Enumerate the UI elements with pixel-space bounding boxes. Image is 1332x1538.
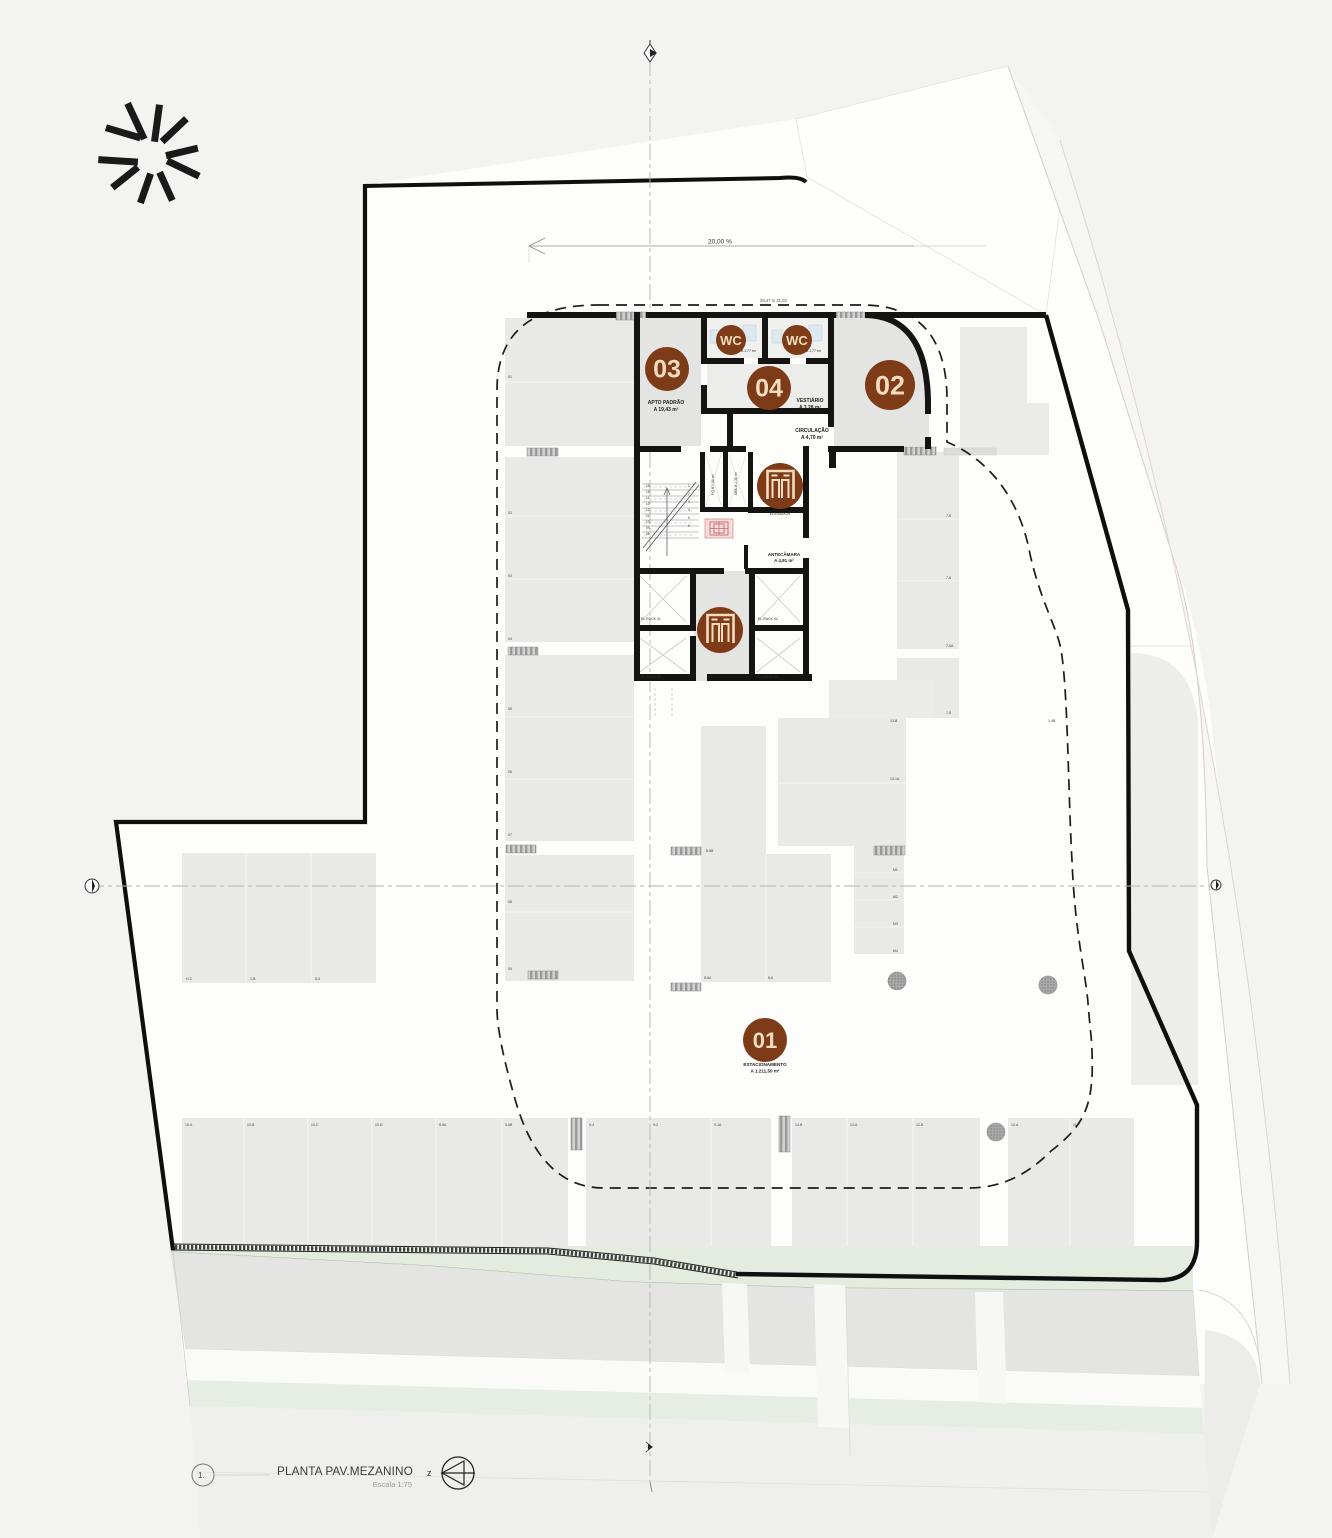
svg-text:1-B: 1-B xyxy=(250,977,256,981)
svg-text:EL.RACK 01: EL.RACK 01 xyxy=(641,617,661,621)
svg-text:1: 1 xyxy=(688,484,690,488)
svg-text:8-4: 8-4 xyxy=(315,977,320,981)
svg-text:05: 05 xyxy=(508,707,512,711)
svg-text:5: 5 xyxy=(688,516,690,520)
svg-text:H-2: H-2 xyxy=(186,977,192,981)
svg-text:WC: WC xyxy=(720,333,742,348)
svg-text:01: 01 xyxy=(508,375,512,379)
svg-text:DML A 1,30 m²: DML A 1,30 m² xyxy=(734,471,738,495)
svg-text:6: 6 xyxy=(688,524,690,528)
svg-text:3: 3 xyxy=(688,500,690,504)
svg-text:14: 14 xyxy=(646,496,650,500)
svg-text:12: 12 xyxy=(646,508,650,512)
svg-text:03: 03 xyxy=(508,574,512,578)
svg-text:09: 09 xyxy=(508,967,512,971)
svg-text:13-B: 13-B xyxy=(795,1123,803,1127)
svg-text:11: 11 xyxy=(1073,1123,1077,1127)
svg-text:12-B: 12-B xyxy=(916,1123,924,1127)
svg-text:1-4B: 1-4B xyxy=(1048,719,1056,723)
svg-text:13: 13 xyxy=(646,502,650,506)
svg-text:9-6A: 9-6A xyxy=(439,1123,447,1127)
svg-text:WC: WC xyxy=(786,333,808,348)
svg-text:10: 10 xyxy=(646,520,650,524)
svg-text:7-8: 7-8 xyxy=(946,711,951,715)
svg-text:1.: 1. xyxy=(198,1471,205,1480)
svg-text:M2: M2 xyxy=(893,895,898,899)
svg-text:9-6B: 9-6B xyxy=(505,1123,513,1127)
svg-text:9-2: 9-2 xyxy=(653,1123,658,1127)
svg-text:10-A: 10-A xyxy=(185,1123,193,1127)
svg-text:15: 15 xyxy=(646,490,650,494)
svg-text:z: z xyxy=(427,1468,432,1478)
svg-text:10-C: 10-C xyxy=(311,1123,319,1127)
svg-text:02: 02 xyxy=(875,371,905,401)
svg-text:A 1.211,50 m²: A 1.211,50 m² xyxy=(751,1069,780,1074)
svg-text:7-6: 7-6 xyxy=(946,576,951,580)
svg-text:ESTACIONAMENTO: ESTACIONAMENTO xyxy=(743,1062,787,1067)
svg-text:2: 2 xyxy=(688,492,690,496)
svg-text:EL.RACK 04: EL.RACK 04 xyxy=(758,675,778,679)
svg-text:EL.RACK 03: EL.RACK 03 xyxy=(641,675,661,679)
svg-text:29,47 m 31,02: 29,47 m 31,02 xyxy=(760,298,787,303)
svg-text:8-5B: 8-5B xyxy=(706,849,714,853)
svg-text:A 1,77 m²: A 1,77 m² xyxy=(806,349,822,353)
svg-text:A 4,70 m²: A 4,70 m² xyxy=(801,435,823,441)
svg-text:9-4: 9-4 xyxy=(589,1123,594,1127)
svg-text:APTO PADRÃO: APTO PADRÃO xyxy=(648,399,685,406)
svg-text:08: 08 xyxy=(646,532,650,536)
svg-text:06: 06 xyxy=(508,770,512,774)
svg-text:8-6A: 8-6A xyxy=(704,976,712,980)
svg-text:A 4,91 m²: A 4,91 m² xyxy=(774,558,794,563)
svg-text:A 1,77 m²: A 1,77 m² xyxy=(741,349,757,353)
svg-text:13-B: 13-B xyxy=(890,719,898,723)
svg-text:M1: M1 xyxy=(893,868,898,872)
svg-text:10-B: 10-B xyxy=(247,1123,255,1127)
svg-text:12-A: 12-A xyxy=(1011,1123,1019,1127)
svg-text:VESTIÁRIO: VESTIÁRIO xyxy=(797,397,824,404)
svg-text:M3: M3 xyxy=(893,922,898,926)
svg-text:M4: M4 xyxy=(893,949,898,953)
svg-text:PQ A 1,30 m²: PQ A 1,30 m² xyxy=(711,473,715,495)
svg-text:ELEVADOR: ELEVADOR xyxy=(770,512,791,516)
svg-text:20,00 %: 20,00 % xyxy=(708,239,732,246)
svg-text:01: 01 xyxy=(753,1028,777,1053)
svg-text:09: 09 xyxy=(646,526,650,530)
svg-text:16: 16 xyxy=(646,484,650,488)
svg-text:Escala 1:75: Escala 1:75 xyxy=(373,1480,412,1489)
svg-text:04: 04 xyxy=(508,637,512,641)
svg-text:EL.RACK 02: EL.RACK 02 xyxy=(758,617,778,621)
svg-text:9-1A: 9-1A xyxy=(714,1123,722,1127)
svg-text:13-1A: 13-1A xyxy=(890,777,900,781)
svg-text:A 19,43 m²: A 19,43 m² xyxy=(654,407,679,413)
svg-text:07: 07 xyxy=(508,833,512,837)
svg-text:CIRCULAÇÃO: CIRCULAÇÃO xyxy=(795,427,829,434)
svg-text:10-D: 10-D xyxy=(375,1123,383,1127)
svg-text:ANTECÂMARA: ANTECÂMARA xyxy=(768,551,801,557)
svg-text:8-6: 8-6 xyxy=(768,976,773,980)
svg-text:7-5: 7-5 xyxy=(946,514,951,518)
svg-text:08: 08 xyxy=(508,900,512,904)
svg-text:4: 4 xyxy=(688,508,690,512)
svg-text:11: 11 xyxy=(646,514,650,518)
svg-text:7-6A: 7-6A xyxy=(946,644,954,648)
svg-text:PLANTA PAV.MEZANINO: PLANTA PAV.MEZANINO xyxy=(277,1464,413,1478)
svg-text:02: 02 xyxy=(508,511,512,515)
svg-text:04: 04 xyxy=(755,375,783,403)
svg-text:13-A: 13-A xyxy=(850,1123,858,1127)
svg-text:03: 03 xyxy=(653,356,681,384)
svg-text:A 3,28 m²: A 3,28 m² xyxy=(799,405,821,411)
